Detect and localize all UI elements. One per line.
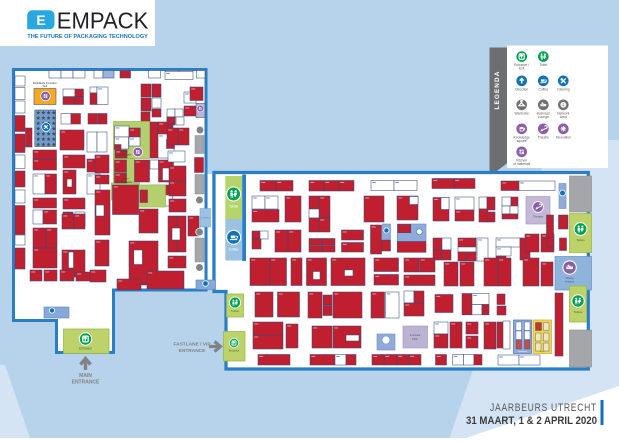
svg-text:Exit: Exit	[519, 67, 525, 71]
svg-text:EMPACK: EMPACK	[57, 7, 149, 33]
svg-text:Toilets: Toilets	[576, 238, 585, 242]
svg-text:Lounge: Lounge	[538, 115, 549, 119]
svg-text:Toilets: Toilets	[229, 205, 238, 209]
svg-text:Toilet: Toilet	[539, 63, 547, 67]
svg-text:Coffee: Coffee	[229, 248, 239, 252]
svg-text:MAIN: MAIN	[79, 373, 92, 379]
svg-text:Entrance: Entrance	[79, 347, 92, 351]
svg-text:d'oostwaards: d'oostwaards	[118, 181, 133, 184]
svg-text:Coffee: Coffee	[538, 87, 548, 91]
svg-text:Entrance: Entrance	[229, 349, 240, 353]
svg-text:FASTLANE / VIP: FASTLANE / VIP	[173, 342, 211, 348]
svg-text:Innovation: Innovation	[556, 135, 571, 139]
svg-text:ENTRANCE: ENTRANCE	[72, 380, 100, 386]
svg-text:31 MAART, 1 & 2 APRIL 2020: 31 MAART, 1 & 2 APRIL 2020	[466, 415, 597, 427]
svg-text:Theatre: Theatre	[538, 135, 550, 139]
svg-text:of materials: of materials	[513, 162, 530, 166]
svg-text:Toilets: Toilets	[574, 310, 583, 314]
svg-text:Direction: Direction	[515, 87, 528, 91]
svg-text:ENTRANCE: ENTRANCE	[179, 348, 206, 354]
svg-text:sessies: sessies	[565, 280, 575, 284]
svg-text:THE FUTURE OF PACKAGING TECHNO: THE FUTURE OF PACKAGING TECHNOLOGY	[27, 34, 148, 40]
svg-text:LEGENDA: LEGENDA	[494, 71, 501, 110]
svg-text:JAARBEURS UTRECHT: JAARBEURS UTRECHT	[490, 402, 597, 414]
svg-text:Hub: Hub	[43, 85, 48, 88]
svg-text:Theatre: Theatre	[533, 215, 544, 219]
svg-text:Innovatie: Innovatie	[410, 333, 421, 337]
svg-text:Catering: Catering	[557, 87, 570, 91]
svg-text:square: square	[517, 139, 527, 143]
svg-text:Area: Area	[560, 115, 567, 119]
svg-text:Laadstraat: Laadstraat	[518, 350, 528, 353]
svg-text:d'oostwaards: d'oostwaards	[117, 154, 132, 157]
svg-text:Toilets: Toilets	[231, 309, 240, 313]
svg-text:Plein: Plein	[412, 337, 418, 341]
svg-text:Wardrobe: Wardrobe	[515, 111, 530, 115]
svg-text:E: E	[36, 12, 45, 28]
